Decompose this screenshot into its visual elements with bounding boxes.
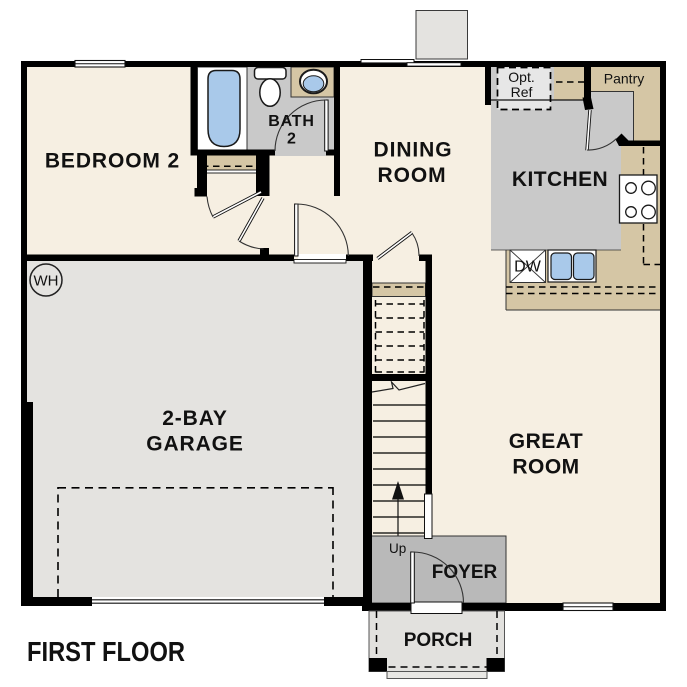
svg-text:Ref: Ref	[511, 84, 533, 100]
svg-text:Opt.: Opt.	[508, 69, 534, 85]
svg-text:WH: WH	[34, 273, 59, 290]
svg-text:DINING: DINING	[374, 139, 453, 162]
svg-text:ROOM: ROOM	[512, 456, 579, 479]
svg-text:KITCHEN: KITCHEN	[512, 168, 608, 191]
svg-text:PORCH: PORCH	[404, 630, 473, 651]
svg-text:ROOM: ROOM	[378, 164, 447, 187]
svg-text:Pantry: Pantry	[604, 71, 644, 87]
svg-text:GARAGE: GARAGE	[146, 433, 244, 456]
svg-text:FOYER: FOYER	[432, 562, 498, 583]
svg-text:BEDROOM 2: BEDROOM 2	[45, 150, 180, 173]
svg-text:DW: DW	[514, 259, 542, 276]
svg-text:FIRST FLOOR: FIRST FLOOR	[27, 636, 185, 667]
svg-text:2: 2	[287, 131, 296, 148]
svg-text:Up: Up	[389, 541, 406, 556]
svg-text:2-BAY: 2-BAY	[162, 407, 228, 430]
svg-text:BATH: BATH	[268, 113, 314, 130]
svg-text:GREAT: GREAT	[509, 430, 583, 453]
